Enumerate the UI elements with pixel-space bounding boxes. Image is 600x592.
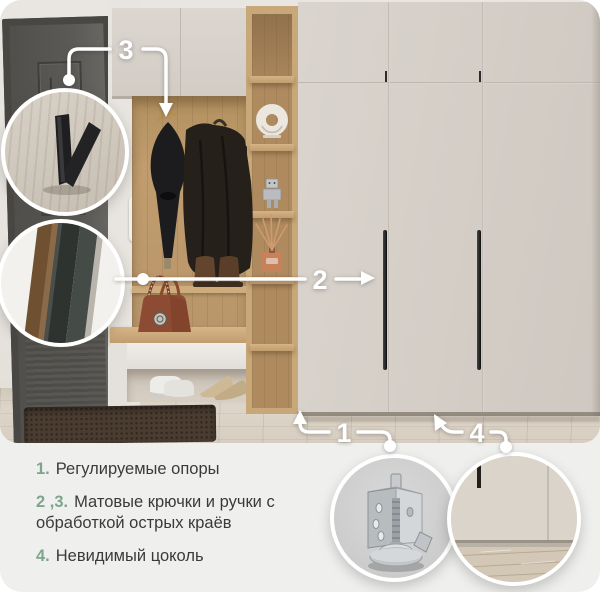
gold-hook-icon bbox=[159, 112, 175, 120]
robot-figurine bbox=[263, 179, 281, 208]
feature-list: 1.Регулируемые опоры 2 ,3.Матовые крючки… bbox=[36, 459, 352, 579]
feature-text: Матовые крючки и ручки с обработкой остр… bbox=[36, 493, 275, 532]
feature-number: 4. bbox=[36, 547, 50, 565]
infographic-card: 3 2 1 4 1.Регулируемые опоры 2 bbox=[0, 0, 600, 592]
matte-hook-icon bbox=[5, 92, 125, 212]
feature-item-1: 1.Регулируемые опоры bbox=[36, 459, 352, 480]
handbag bbox=[138, 277, 191, 332]
feature-number: 1. bbox=[36, 460, 50, 478]
hook-closeup-circle bbox=[1, 88, 129, 216]
handle-closeup bbox=[1, 223, 121, 343]
feature-item-2: 2 ,3.Матовые крючки и ручки с обработкой… bbox=[36, 492, 352, 534]
umbrella bbox=[151, 122, 186, 269]
hallway-photo bbox=[0, 0, 600, 443]
aroma-diffuser bbox=[256, 215, 287, 272]
feature-text: Регулируемые опоры bbox=[56, 460, 220, 478]
coat bbox=[183, 120, 253, 279]
scene-objects bbox=[0, 0, 600, 443]
plinth-closeup bbox=[451, 456, 577, 582]
donut-vase bbox=[261, 109, 283, 138]
feature-item-3: 4.Невидимый цоколь bbox=[36, 546, 352, 567]
plinth-closeup-circle bbox=[447, 452, 581, 586]
handle-closeup-circle bbox=[0, 219, 125, 347]
feature-text: Невидимый цоколь bbox=[56, 547, 204, 565]
adjustable-foot bbox=[334, 458, 454, 578]
sneakers bbox=[150, 376, 194, 398]
heels bbox=[200, 376, 247, 400]
feature-number: 2 ,3. bbox=[36, 493, 68, 511]
